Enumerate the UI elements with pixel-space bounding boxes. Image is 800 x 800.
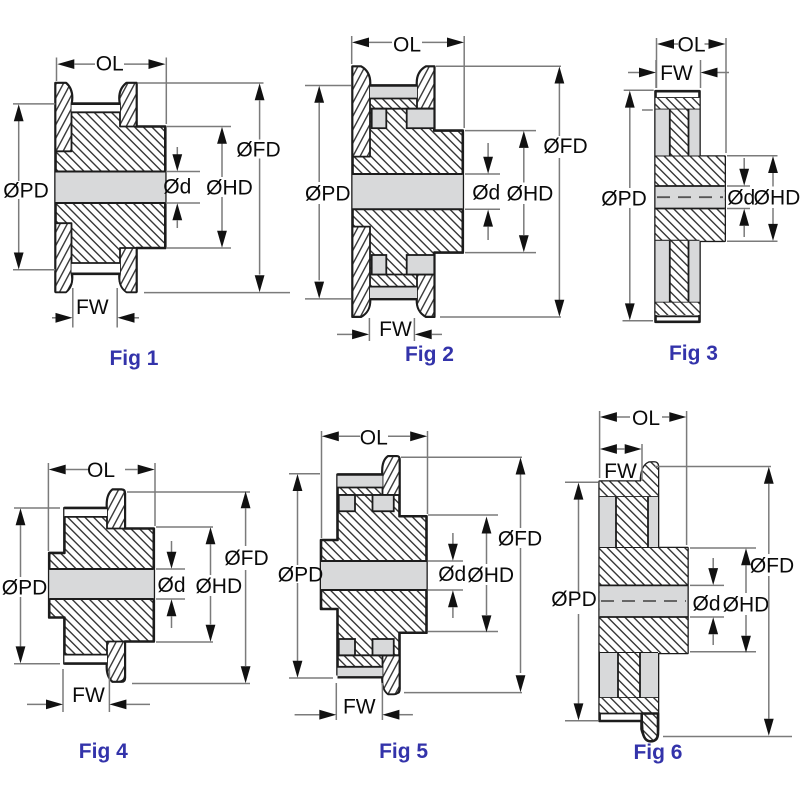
svg-text:FW: FW bbox=[379, 318, 412, 341]
svg-text:FW: FW bbox=[76, 296, 109, 319]
svg-text:Ød: Ød bbox=[438, 563, 466, 586]
svg-text:FW: FW bbox=[343, 695, 376, 718]
svg-text:OL: OL bbox=[87, 459, 115, 482]
svg-text:OL: OL bbox=[393, 33, 421, 56]
svg-text:ØPD: ØPD bbox=[601, 187, 647, 210]
svg-text:Ød: Ød bbox=[163, 175, 191, 198]
svg-text:Fig 3: Fig 3 bbox=[669, 342, 718, 365]
svg-text:FW: FW bbox=[604, 460, 637, 483]
svg-text:ØPD: ØPD bbox=[305, 182, 351, 205]
svg-text:ØPD: ØPD bbox=[3, 179, 49, 202]
svg-text:Fig 1: Fig 1 bbox=[109, 347, 158, 370]
svg-text:ØHD: ØHD bbox=[723, 593, 770, 616]
svg-text:Ød: Ød bbox=[157, 574, 185, 597]
svg-text:ØHD: ØHD bbox=[195, 575, 242, 598]
svg-text:Fig 2: Fig 2 bbox=[405, 343, 454, 366]
svg-text:FW: FW bbox=[660, 62, 693, 85]
svg-text:ØPD: ØPD bbox=[2, 576, 48, 599]
svg-text:ØPD: ØPD bbox=[551, 588, 597, 611]
svg-text:ØHD: ØHD bbox=[507, 182, 554, 205]
svg-text:OL: OL bbox=[632, 407, 660, 430]
svg-text:OL: OL bbox=[96, 52, 124, 75]
svg-text:OL: OL bbox=[360, 426, 388, 449]
svg-text:ØHD: ØHD bbox=[206, 176, 253, 199]
svg-text:ØHD: ØHD bbox=[467, 564, 514, 587]
svg-text:ØHD: ØHD bbox=[754, 187, 800, 210]
svg-text:Fig 5: Fig 5 bbox=[379, 740, 428, 763]
svg-text:Ød: Ød bbox=[472, 181, 500, 204]
svg-text:ØFD: ØFD bbox=[498, 527, 542, 550]
svg-text:Fig 6: Fig 6 bbox=[633, 741, 682, 764]
svg-text:FW: FW bbox=[72, 684, 105, 707]
svg-text:ØFD: ØFD bbox=[236, 138, 280, 161]
svg-text:Ød: Ød bbox=[692, 592, 720, 615]
svg-text:Ød: Ød bbox=[727, 187, 755, 210]
svg-text:ØFD: ØFD bbox=[543, 135, 587, 158]
svg-text:OL: OL bbox=[677, 33, 705, 56]
svg-text:ØPD: ØPD bbox=[278, 563, 324, 586]
svg-text:ØFD: ØFD bbox=[224, 547, 268, 570]
svg-text:ØFD: ØFD bbox=[750, 554, 794, 577]
svg-text:Fig 4: Fig 4 bbox=[79, 740, 128, 763]
